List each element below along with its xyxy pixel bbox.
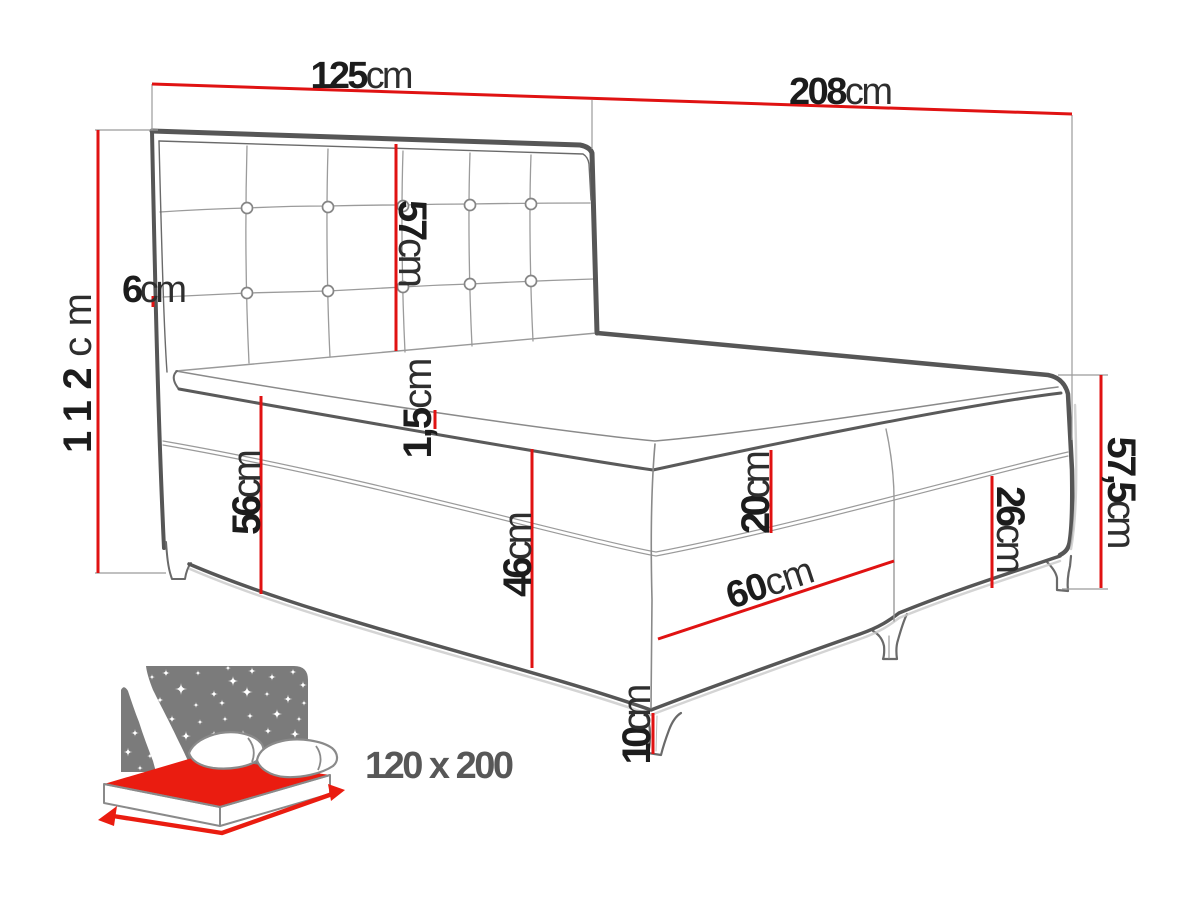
svg-text:6cm: 6cm [122,269,187,311]
svg-text:120 x 200: 120 x 200 [365,745,514,787]
svg-text:208cm: 208cm [789,71,893,113]
svg-text:1,5cm: 1,5cm [396,358,440,459]
svg-text:57,5cm: 57,5cm [1099,437,1143,550]
svg-text:57cm: 57cm [390,200,434,288]
svg-text:46cm: 46cm [496,511,540,597]
svg-text:10cm: 10cm [615,684,659,765]
svg-text:26cm: 26cm [988,486,1032,574]
svg-text:56cm: 56cm [225,449,269,535]
svg-text:20cm: 20cm [734,450,778,534]
svg-text:125cm: 125cm [311,55,414,97]
